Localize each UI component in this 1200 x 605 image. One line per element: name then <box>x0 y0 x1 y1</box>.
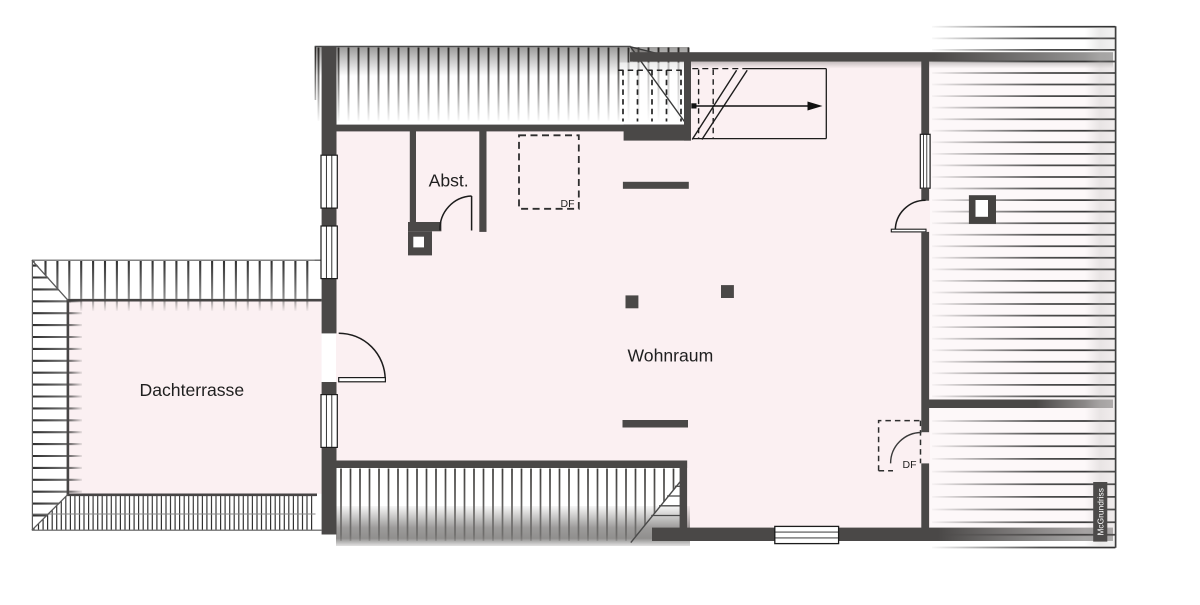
svg-text:McGrundriss: McGrundriss <box>1095 488 1105 535</box>
svg-text:DF: DF <box>903 459 917 471</box>
svg-text:Dachterrasse: Dachterrasse <box>140 380 245 400</box>
svg-text:Wohnraum: Wohnraum <box>628 346 714 366</box>
svg-text:Abst.: Abst. <box>429 170 469 190</box>
svg-text:DF: DF <box>561 198 575 210</box>
